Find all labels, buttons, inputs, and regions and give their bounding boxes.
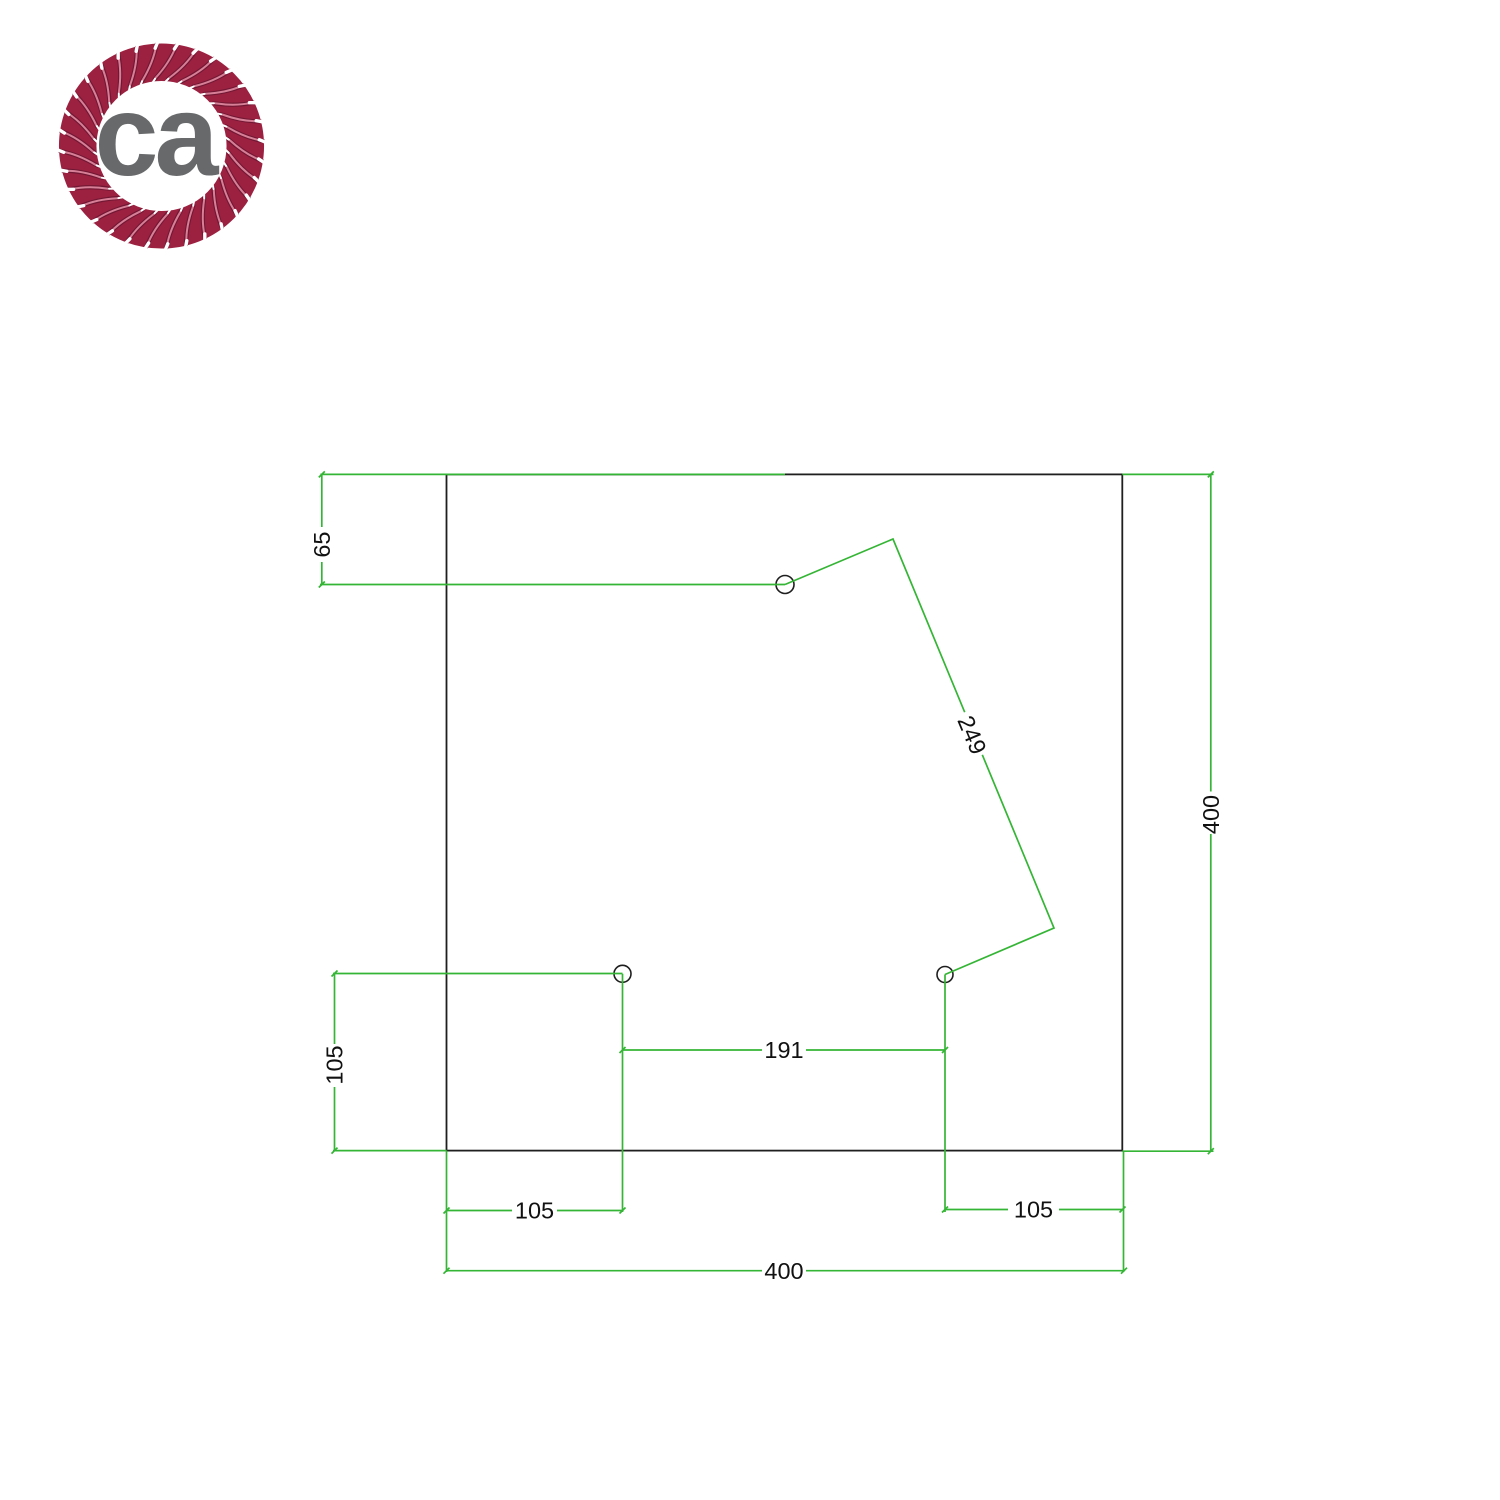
svg-text:ca: ca (95, 72, 220, 200)
svg-text:105: 105 (515, 1198, 554, 1224)
svg-text:249: 249 (952, 712, 991, 758)
svg-text:105: 105 (322, 1045, 348, 1084)
svg-text:400: 400 (1198, 795, 1224, 834)
svg-text:191: 191 (764, 1037, 803, 1063)
svg-text:400: 400 (764, 1258, 803, 1284)
svg-text:65: 65 (309, 532, 335, 558)
svg-text:105: 105 (1014, 1197, 1053, 1223)
